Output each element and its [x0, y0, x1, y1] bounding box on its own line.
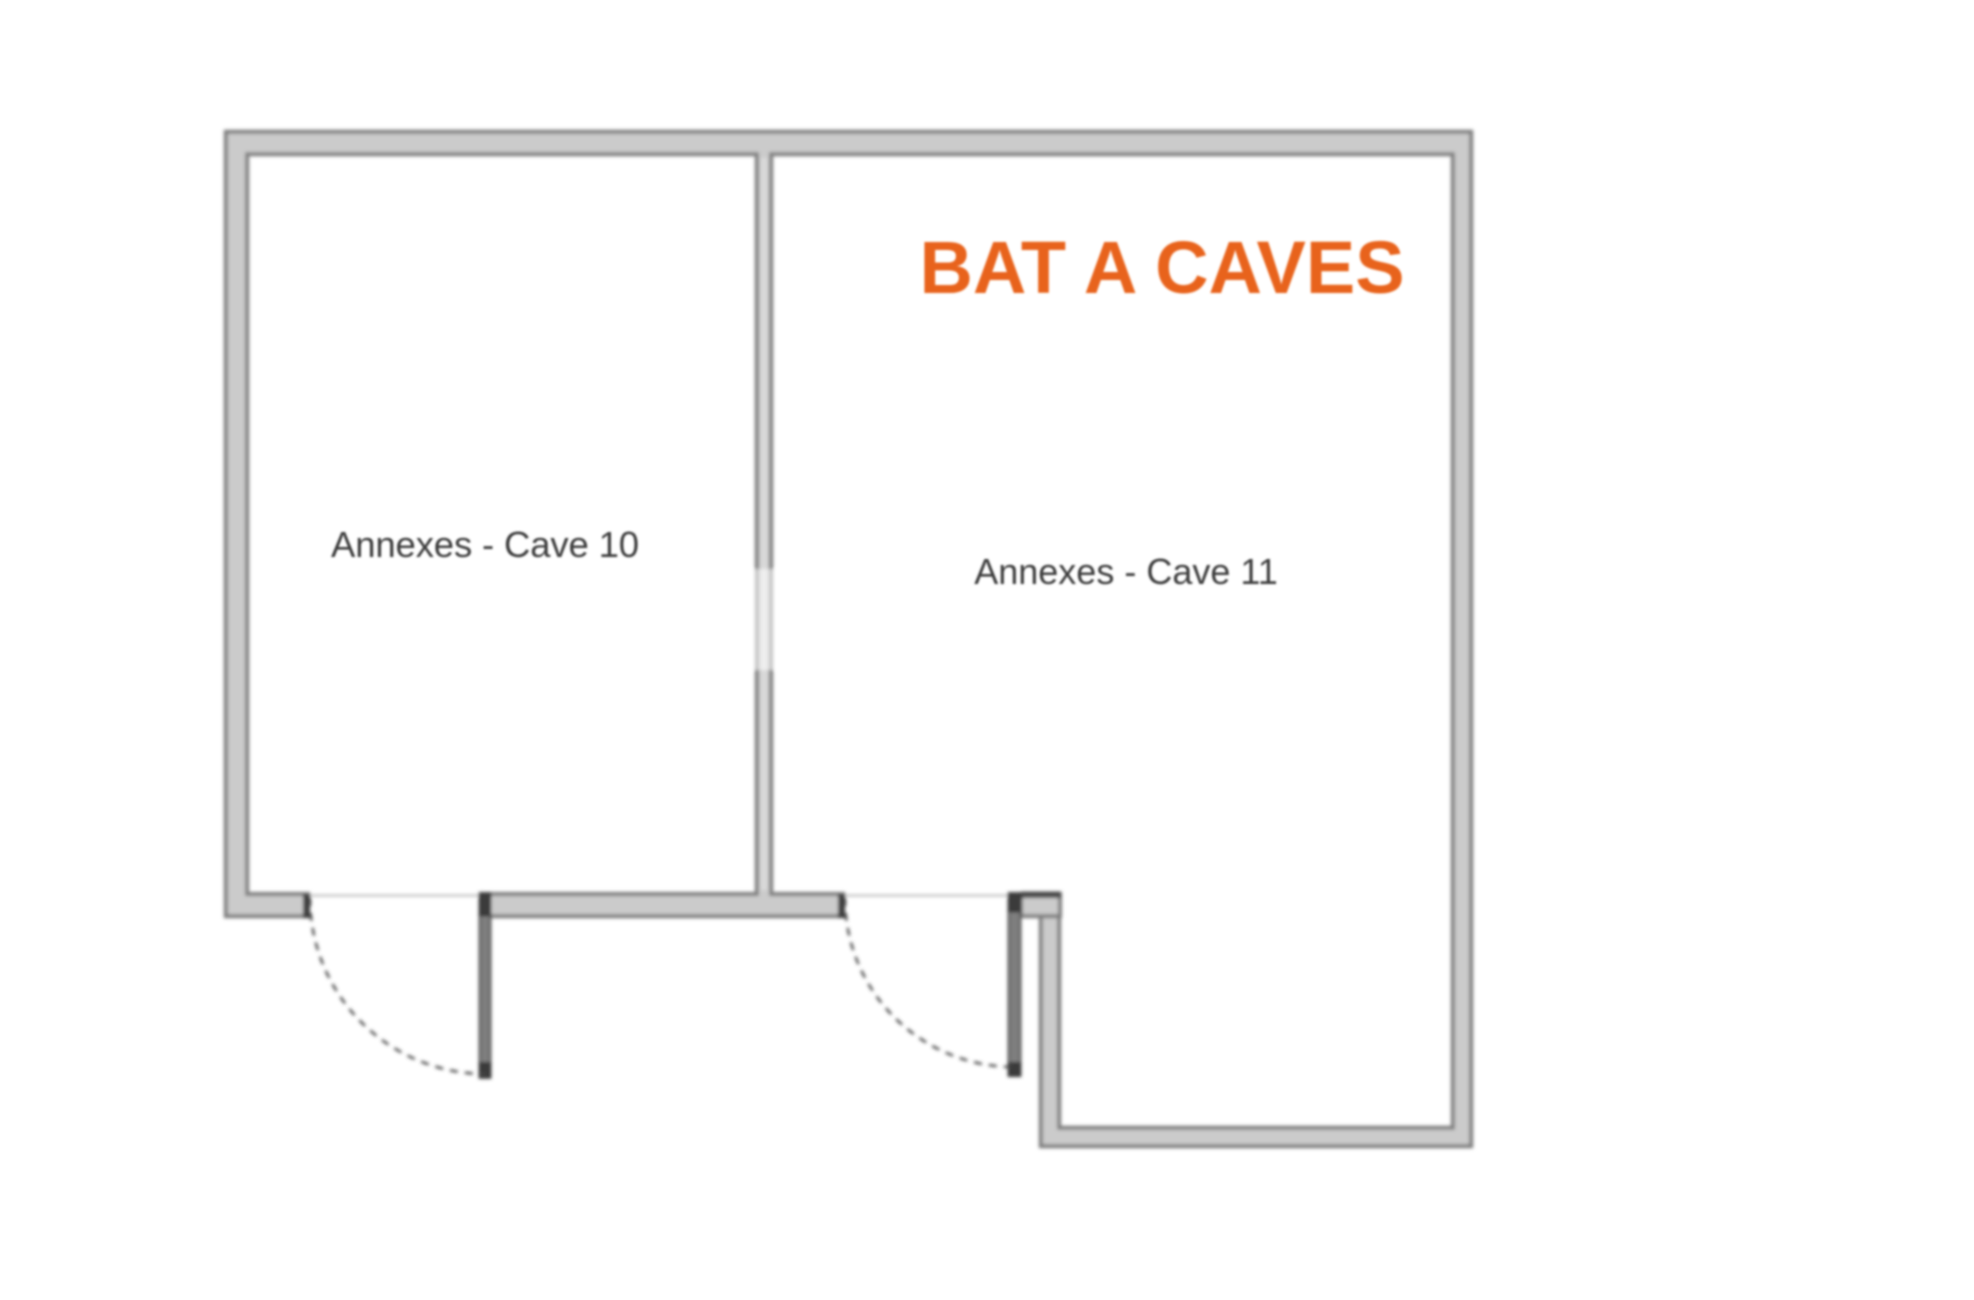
svg-text:BAT A CAVES: BAT A CAVES [919, 226, 1404, 309]
svg-text:Annexes - Cave 11: Annexes - Cave 11 [974, 551, 1278, 592]
svg-text:Annexes - Cave 10: Annexes - Cave 10 [331, 524, 639, 565]
